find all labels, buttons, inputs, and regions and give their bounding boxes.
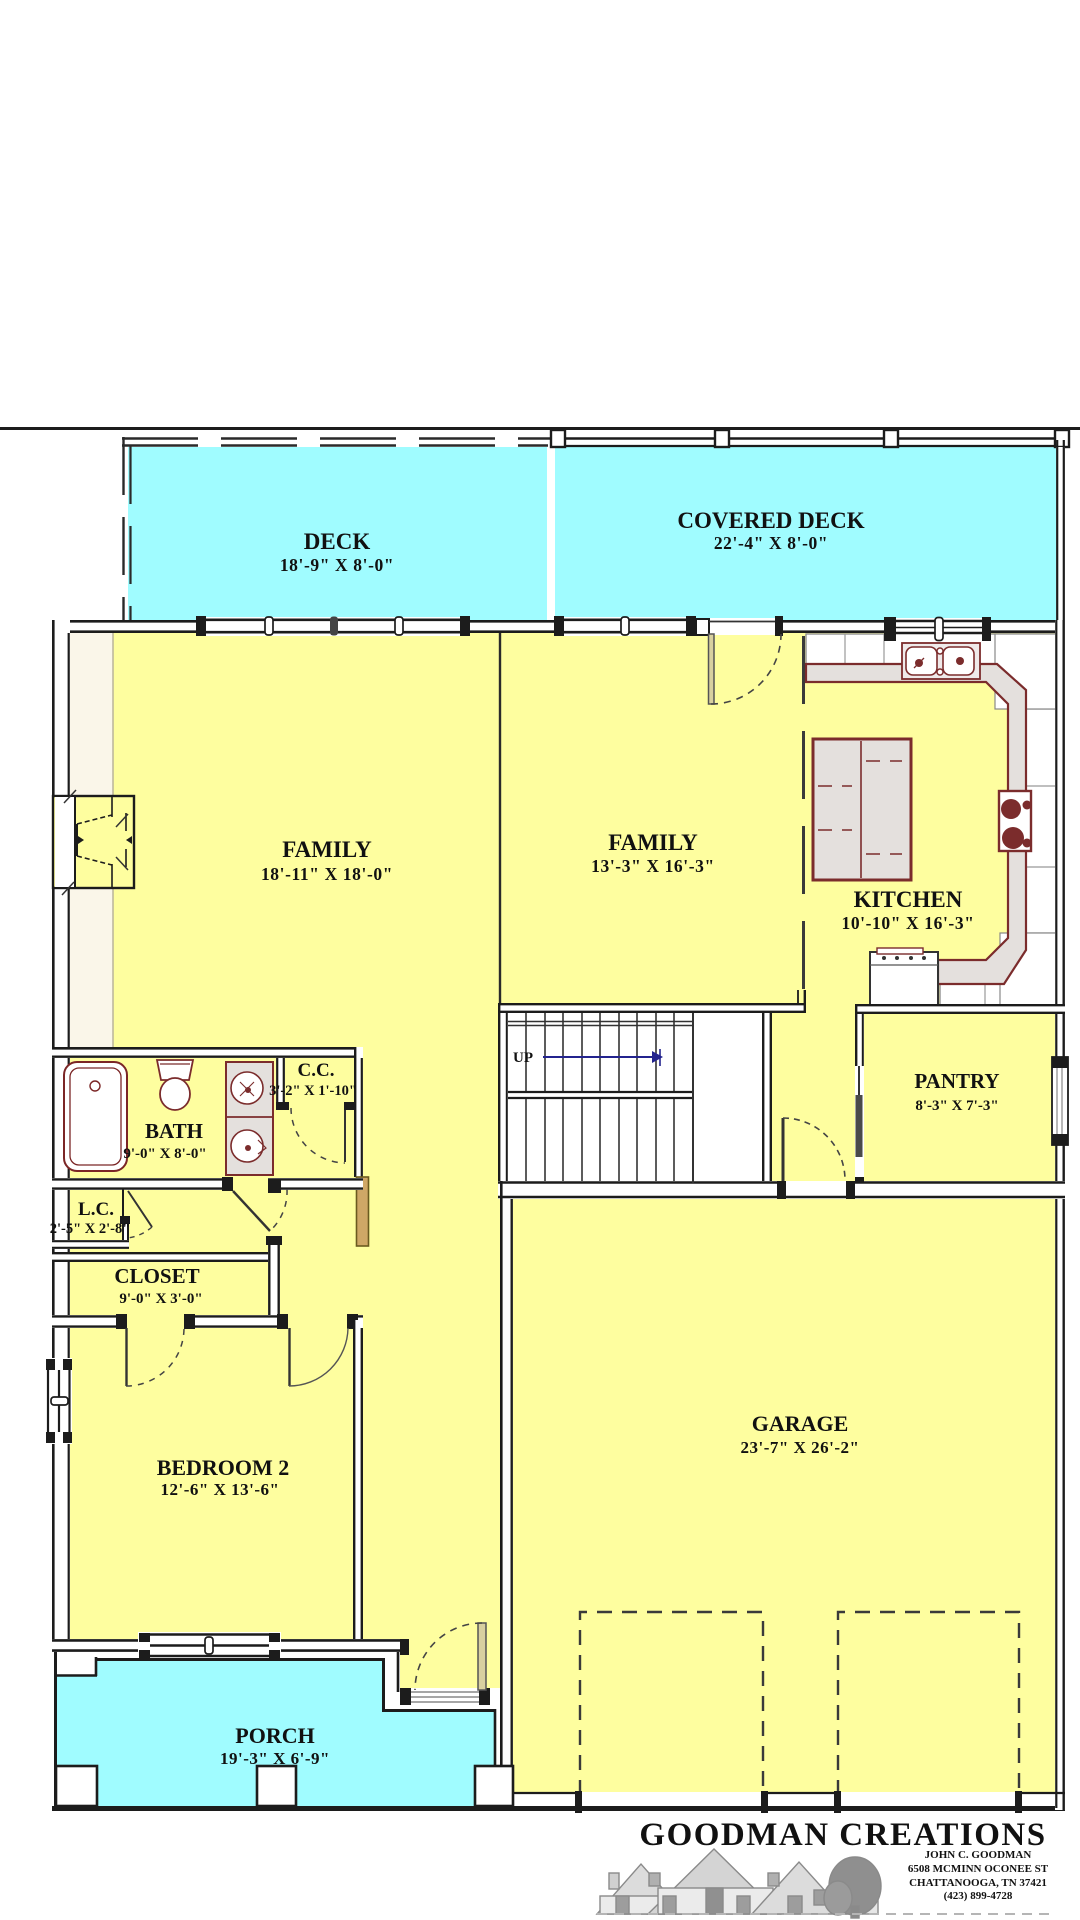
svg-text:DECK: DECK [304,529,371,554]
svg-text:18'-11" X 18'-0": 18'-11" X 18'-0" [261,864,393,884]
svg-text:13'-3" X 16'-3": 13'-3" X 16'-3" [591,856,715,876]
svg-text:12'-6" X 13'-6": 12'-6" X 13'-6" [161,1480,280,1499]
svg-text:C.C.: C.C. [298,1060,335,1081]
svg-text:L.C.: L.C. [78,1199,114,1220]
svg-text:CHATTANOOGA, TN 37421: CHATTANOOGA, TN 37421 [909,1877,1047,1889]
svg-text:UP: UP [513,1050,533,1066]
svg-text:BATH: BATH [145,1119,203,1143]
svg-text:CLOSET: CLOSET [114,1264,199,1288]
svg-text:COVERED DECK: COVERED DECK [677,508,864,533]
svg-text:19'-3" X 6'-9": 19'-3" X 6'-9" [220,1749,330,1768]
svg-text:2'-5" X 2'-8": 2'-5" X 2'-8" [50,1221,131,1237]
svg-text:22'-4" X 8'-0": 22'-4" X 8'-0" [714,533,828,553]
svg-text:FAMILY: FAMILY [282,837,372,862]
svg-text:10'-10" X 16'-3": 10'-10" X 16'-3" [841,913,974,933]
svg-text:PANTRY: PANTRY [914,1069,999,1093]
svg-text:KITCHEN: KITCHEN [854,887,963,912]
svg-text:GOODMAN CREATIONS: GOODMAN CREATIONS [639,1817,1046,1853]
svg-text:9'-0" X 3'-0": 9'-0" X 3'-0" [119,1291,202,1307]
svg-text:9'-0" X 8'-0": 9'-0" X 8'-0" [123,1146,206,1162]
svg-text:GARAGE: GARAGE [752,1411,849,1436]
svg-text:(423) 899-4728: (423) 899-4728 [944,1890,1013,1902]
svg-text:18'-9" X 8'-0": 18'-9" X 8'-0" [280,555,394,575]
svg-text:BEDROOM 2: BEDROOM 2 [157,1455,290,1480]
svg-text:8'-3" X 7'-3": 8'-3" X 7'-3" [915,1098,998,1114]
svg-text:6508 MCMINN OCONEE ST: 6508 MCMINN OCONEE ST [908,1863,1049,1875]
svg-text:JOHN C. GOODMAN: JOHN C. GOODMAN [925,1849,1032,1861]
svg-text:3'-2" X 1'-10": 3'-2" X 1'-10" [269,1083,357,1099]
svg-text:FAMILY: FAMILY [608,830,698,855]
svg-text:PORCH: PORCH [235,1723,314,1748]
svg-text:23'-7" X 26'-2": 23'-7" X 26'-2" [741,1438,860,1457]
